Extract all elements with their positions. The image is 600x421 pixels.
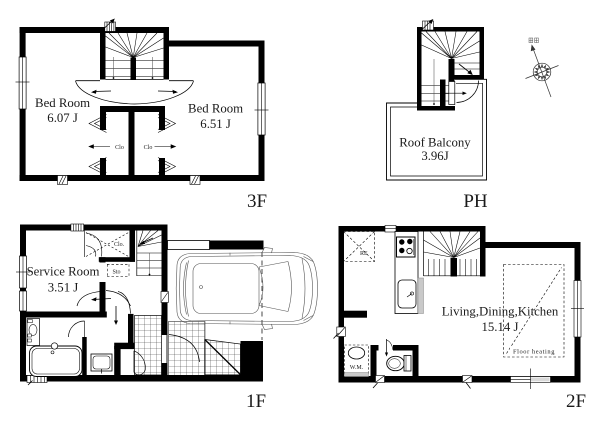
svg-text:Living,Dining,Kitchen: Living,Dining,Kitchen (442, 305, 559, 319)
svg-text:2F: 2F (566, 391, 586, 412)
svg-text:3F: 3F (247, 191, 267, 212)
svg-text:Floor heating: Floor heating (513, 349, 555, 356)
svg-text:6.07 J: 6.07 J (47, 111, 78, 125)
svg-text:3.51 J: 3.51 J (48, 281, 79, 295)
svg-text:Clo: Clo (144, 145, 153, 151)
svg-text:15.14 J: 15.14 J (482, 320, 519, 334)
svg-text:Clo.: Clo. (114, 242, 125, 248)
svg-text:3.96J: 3.96J (421, 149, 448, 163)
svg-text:6.51 J: 6.51 J (200, 117, 231, 131)
svg-text:Clo: Clo (115, 145, 124, 151)
svg-text:Service Room: Service Room (27, 265, 100, 279)
svg-text:W.M.: W.M. (350, 365, 364, 371)
svg-text:PH: PH (463, 191, 488, 212)
svg-text:RE: RE (360, 251, 368, 257)
svg-text:1F: 1F (246, 391, 266, 412)
svg-text:Roof Balcony: Roof Balcony (399, 136, 471, 150)
svg-text:Sto: Sto (113, 270, 121, 276)
svg-text:Bed Room: Bed Room (188, 102, 243, 116)
svg-text:Bed Room: Bed Room (35, 96, 90, 110)
